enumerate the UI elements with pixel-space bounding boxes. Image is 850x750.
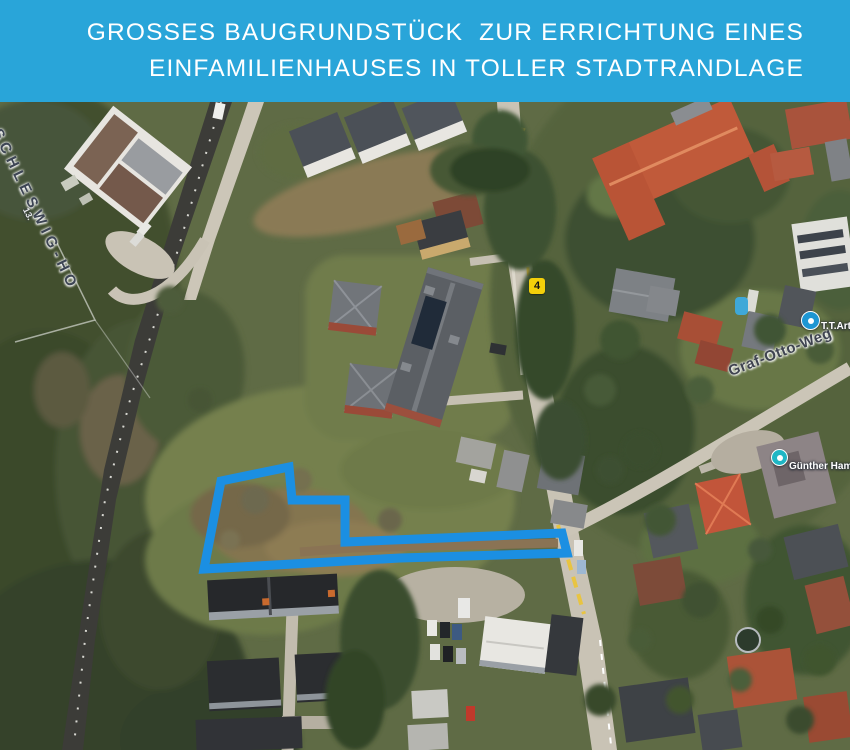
camera-poi-icon[interactable] — [801, 311, 820, 330]
headline-line-2: EINFAMILIENHAUSES IN TOLLER STADTRANDLAG… — [149, 51, 804, 87]
poi-dot — [777, 455, 783, 461]
route-marker-4: 4 — [529, 278, 545, 294]
business-poi-icon[interactable] — [771, 449, 788, 466]
poi-label-photo: T.T.ArtPh — [821, 321, 850, 332]
aerial-map-image: SCHLESWIG-HO 13. Graf-Otto-Weg 4 T.T.Art… — [0, 102, 850, 750]
poi-dot — [808, 318, 814, 324]
headline-line-1: GROSSES BAUGRUNDSTÜCK ZUR ERRICHTUNG EIN… — [87, 15, 804, 51]
aerial-scene — [0, 102, 850, 750]
poi-label-business: Günther Ham — [789, 461, 850, 472]
listing-header: GROSSES BAUGRUNDSTÜCK ZUR ERRICHTUNG EIN… — [0, 0, 850, 102]
real-estate-flyer: GROSSES BAUGRUNDSTÜCK ZUR ERRICHTUNG EIN… — [0, 0, 850, 750]
